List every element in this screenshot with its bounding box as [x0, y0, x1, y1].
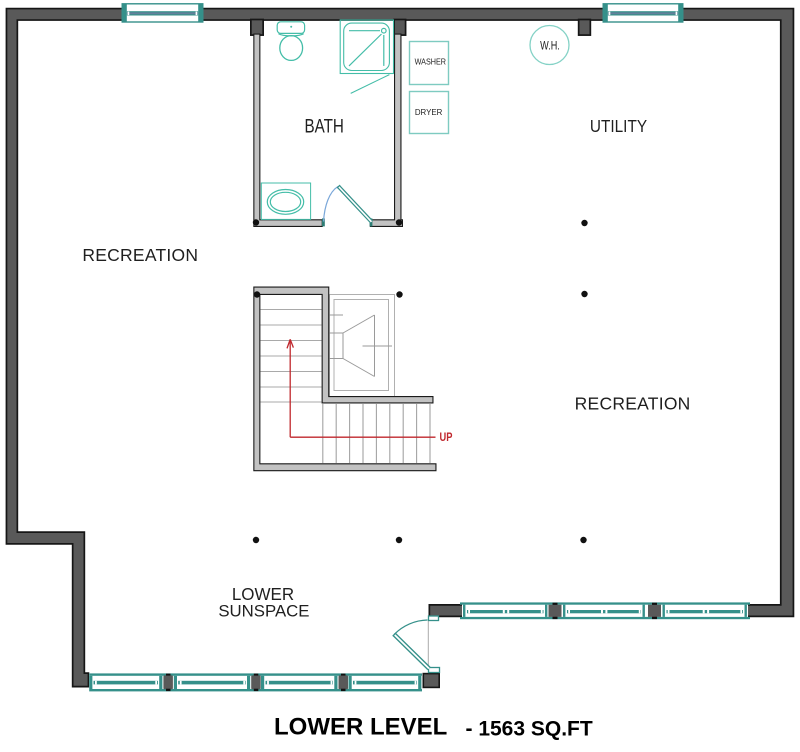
svg-text:SUNSPACE: SUNSPACE: [218, 602, 309, 621]
svg-text:BATH: BATH: [305, 115, 344, 137]
svg-text:WASHER: WASHER: [415, 57, 447, 67]
svg-text:UP: UP: [440, 431, 453, 444]
svg-text:LOWER LEVEL: LOWER LEVEL: [274, 714, 447, 741]
svg-text:DRYER: DRYER: [415, 107, 443, 117]
svg-text:- 1563 SQ.FT: - 1563 SQ.FT: [466, 718, 593, 741]
svg-text:W.H.: W.H.: [540, 39, 560, 53]
svg-text:RECREATION: RECREATION: [575, 393, 691, 413]
svg-text:RECREATION: RECREATION: [82, 245, 198, 265]
svg-text:UTILITY: UTILITY: [590, 116, 647, 136]
